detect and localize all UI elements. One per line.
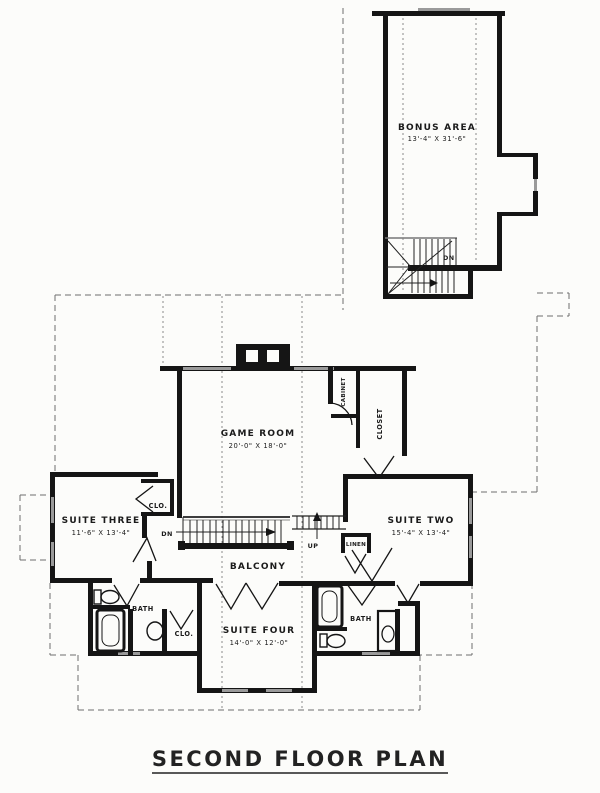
suite-four-window-2 xyxy=(266,689,292,692)
clo-upper-label: CLO. xyxy=(149,502,168,510)
suite-two-bath-door xyxy=(397,584,419,603)
suite-three-entry-door xyxy=(133,538,156,562)
bonus-area-walls xyxy=(372,8,538,299)
game-room-dims: 20'-0" X 18'-0" xyxy=(229,442,288,450)
main-stairs-down xyxy=(176,517,294,550)
lower-section-walls xyxy=(88,583,420,693)
bathtub-right-icon xyxy=(317,586,342,627)
sink-left-icon xyxy=(147,622,163,640)
game-room-window-left xyxy=(183,367,231,370)
game-room-label: GAME ROOM xyxy=(221,429,296,439)
suite-three-label: SUITE THREE xyxy=(62,516,141,526)
bath-right-label: BATH xyxy=(350,615,372,623)
toilet-right-icon xyxy=(327,635,345,648)
suite-three-dims: 11'-6" X 13'-4" xyxy=(72,529,131,537)
balcony-walls xyxy=(216,581,473,609)
suite-three-window-1 xyxy=(51,497,54,523)
suite-two-label: SUITE TWO xyxy=(387,516,454,526)
suite-four-dims: 14'-0" X 12'-0" xyxy=(230,639,289,647)
cabinet-label: CABINET xyxy=(341,377,347,406)
bath-right-window xyxy=(362,652,390,655)
bonus-dn-label: DN xyxy=(443,254,454,262)
bonus-top-window xyxy=(418,8,470,11)
balcony-label: BALCONY xyxy=(230,562,286,572)
clo-lower-door xyxy=(170,610,193,629)
bathtub-left-icon xyxy=(97,610,124,651)
bath-left-label: BATH xyxy=(132,605,154,613)
floor-plan-drawing: DN BONUS AREA 13'-4" X 31'-6" CABINET CL… xyxy=(0,0,600,793)
linen-label: LINEN xyxy=(346,542,366,548)
linen-door xyxy=(345,554,366,573)
suite-two-window-1 xyxy=(469,498,472,524)
main-up-label: UP xyxy=(308,542,319,550)
suite-three-walls xyxy=(50,472,213,606)
floor-plan-page: DN BONUS AREA 13'-4" X 31'-6" CABINET CL… xyxy=(0,0,600,793)
suite-four-double-door xyxy=(216,583,278,609)
toilet-left-icon xyxy=(101,591,119,604)
bonus-area-label: BONUS AREA xyxy=(398,123,476,133)
sink-right-icon xyxy=(382,626,394,642)
cabinet-closet-walls xyxy=(328,366,407,478)
bath-right-door xyxy=(347,583,377,605)
chimney xyxy=(236,344,290,371)
suite-four-label: SUITE FOUR xyxy=(223,626,296,636)
page-title: SECOND FLOOR PLAN xyxy=(152,747,448,771)
suite-three-bath-door xyxy=(114,584,139,606)
bonus-notch-window xyxy=(534,179,537,191)
bonus-area-dims: 13'-4" X 31'-6" xyxy=(408,135,467,143)
suite-two-dims: 15'-4" X 13'-4" xyxy=(392,529,451,537)
suite-two-window-2 xyxy=(469,536,472,558)
suite-three-window-2 xyxy=(51,542,54,566)
suite-four-window-1 xyxy=(222,689,248,692)
suite-two-entry-door xyxy=(352,548,392,581)
roof-outline-dashed-lines xyxy=(20,8,569,710)
main-stairs-up xyxy=(292,512,346,539)
main-dn-label: DN xyxy=(161,530,172,538)
closet-label: CLOSET xyxy=(376,408,384,439)
clo-lower-label: CLO. xyxy=(175,630,194,638)
